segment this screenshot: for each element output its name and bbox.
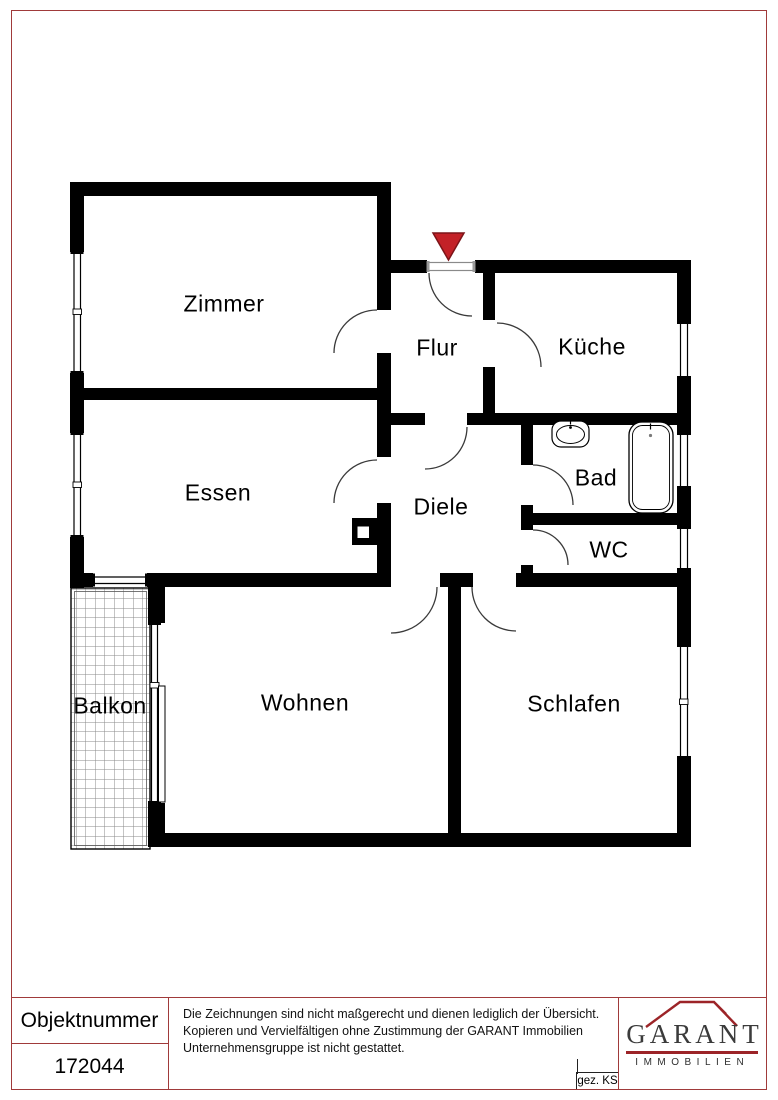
room-label-wohnen: Wohnen <box>261 690 349 717</box>
room-label-kueche: Küche <box>558 334 626 361</box>
floorplan-svg <box>0 0 778 1100</box>
room-label-flur: Flur <box>416 335 458 362</box>
essen-door-arc <box>334 460 377 503</box>
room-label-bad: Bad <box>575 465 617 492</box>
kueche-door-arc <box>497 323 541 367</box>
logo-subtitle: IMMOBILIEN <box>626 1057 758 1068</box>
entrance-door-arc <box>429 273 472 316</box>
room-label-diele: Diele <box>414 494 469 521</box>
bad-door-arc <box>533 465 573 505</box>
logo-cell: GARANT IMMOBILIEN <box>619 998 766 1089</box>
object-number-value: 172044 <box>11 1044 168 1089</box>
disclaimer-cell: Die Zeichnungen sind nicht maßgerecht un… <box>169 998 619 1089</box>
room-label-balkon: Balkon <box>73 693 146 720</box>
logo-name: GARANT <box>626 1019 758 1050</box>
disclaimer-line-1: Die Zeichnungen sind nicht maßgerecht un… <box>183 1006 608 1023</box>
logo-rule <box>626 1051 758 1054</box>
title-block: Objektnummer 172044 Die Zeichnungen sind… <box>11 997 766 1089</box>
disclaimer-line-2: Kopieren und Vervielfältigen ohne Zustim… <box>183 1023 608 1040</box>
object-number-column: Objektnummer 172044 <box>11 998 169 1089</box>
bathtub-icon <box>629 422 673 513</box>
drawn-by-value: gez. KS <box>576 1072 618 1089</box>
room-label-zimmer: Zimmer <box>184 291 265 318</box>
entrance-arrow-icon <box>433 233 464 260</box>
diele-door-arc <box>425 427 467 469</box>
schlafen-door-arc <box>472 587 516 631</box>
garant-logo: GARANT IMMOBILIEN <box>626 1019 758 1068</box>
room-label-schlafen: Schlafen <box>527 691 621 718</box>
wohnen-door-arc <box>391 587 437 633</box>
room-label-essen: Essen <box>185 480 251 507</box>
disclaimer-line-3: Unternehmensgruppe ist nicht gestattet. <box>183 1040 608 1057</box>
entrance-door-leaf <box>427 261 476 272</box>
chimney-shaft-icon <box>352 518 379 545</box>
page: Zimmer Flur Küche Essen Diele Bad WC Bal… <box>0 0 778 1100</box>
object-number-label: Objektnummer <box>11 998 168 1044</box>
bath-sink-icon <box>552 419 589 448</box>
wc-door-arc <box>533 530 568 565</box>
room-label-wc: WC <box>589 537 628 564</box>
zimmer-door-arc <box>334 310 377 353</box>
